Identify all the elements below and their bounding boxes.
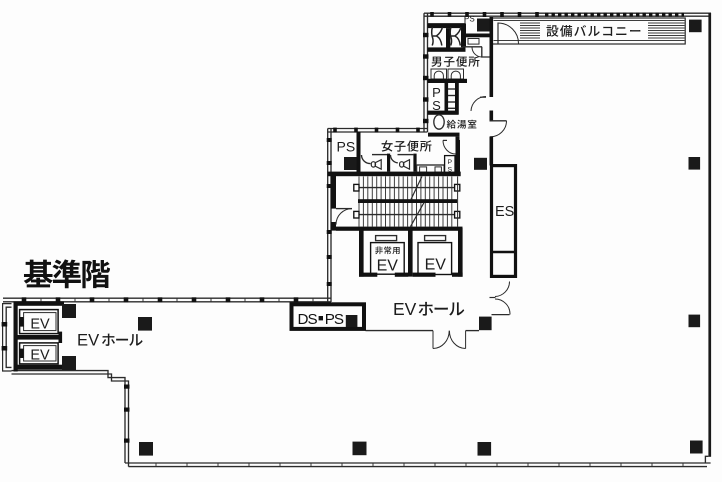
- svg-text:EV: EV: [30, 348, 50, 364]
- svg-text:ES: ES: [495, 204, 514, 220]
- svg-text:PS: PS: [464, 15, 475, 24]
- svg-text:PS: PS: [325, 311, 344, 328]
- svg-text:EV: EV: [393, 299, 417, 319]
- svg-text:EV: EV: [425, 257, 447, 274]
- svg-text:P: P: [448, 159, 453, 166]
- svg-text:PS: PS: [337, 139, 356, 155]
- svg-text:EV: EV: [77, 330, 99, 349]
- svg-text:EV: EV: [30, 317, 50, 333]
- svg-text:EV: EV: [377, 258, 399, 275]
- svg-text:DS: DS: [298, 311, 318, 328]
